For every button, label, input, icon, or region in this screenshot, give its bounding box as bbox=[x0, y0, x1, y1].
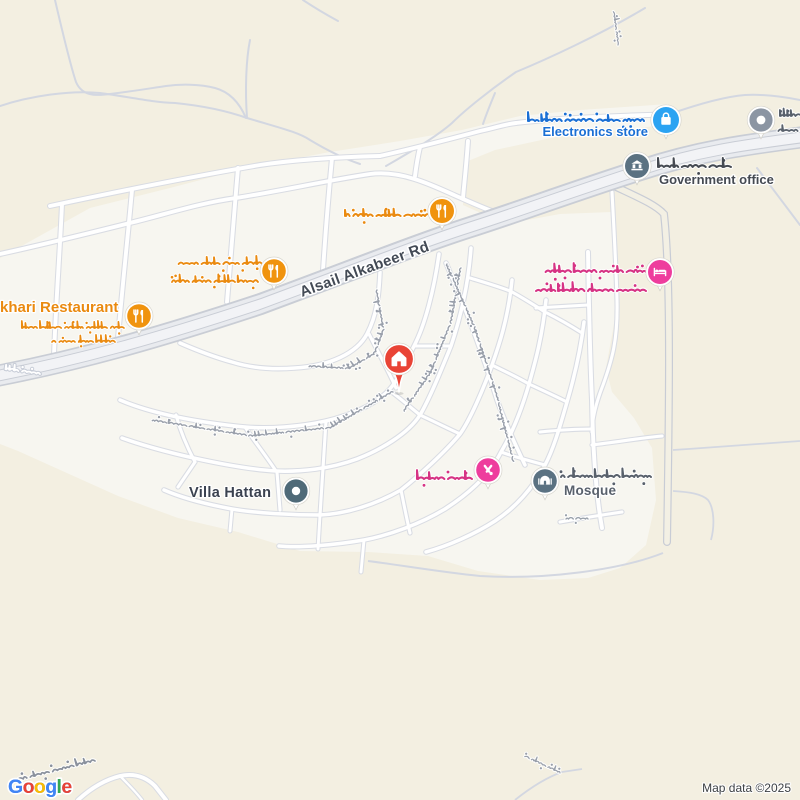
svg-text:Map data ©2025: Map data ©2025 bbox=[702, 781, 791, 795]
svg-text:Electronics store: Electronics store bbox=[543, 124, 649, 139]
svg-text:Google: Google bbox=[8, 776, 72, 798]
svg-text:Mosque: Mosque bbox=[564, 483, 616, 498]
svg-text:Bukhari Restaurant: Bukhari Restaurant bbox=[0, 299, 118, 316]
svg-text:Government office: Government office bbox=[659, 172, 774, 187]
svg-text:Villa Hattan: Villa Hattan bbox=[189, 485, 271, 501]
